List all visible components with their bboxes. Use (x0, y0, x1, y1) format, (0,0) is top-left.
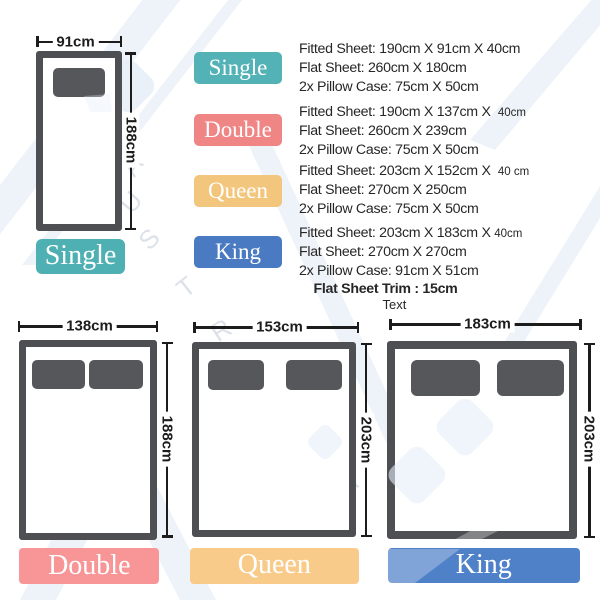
svg-text:T: T (171, 270, 202, 303)
svg-text:S: S (132, 222, 165, 255)
